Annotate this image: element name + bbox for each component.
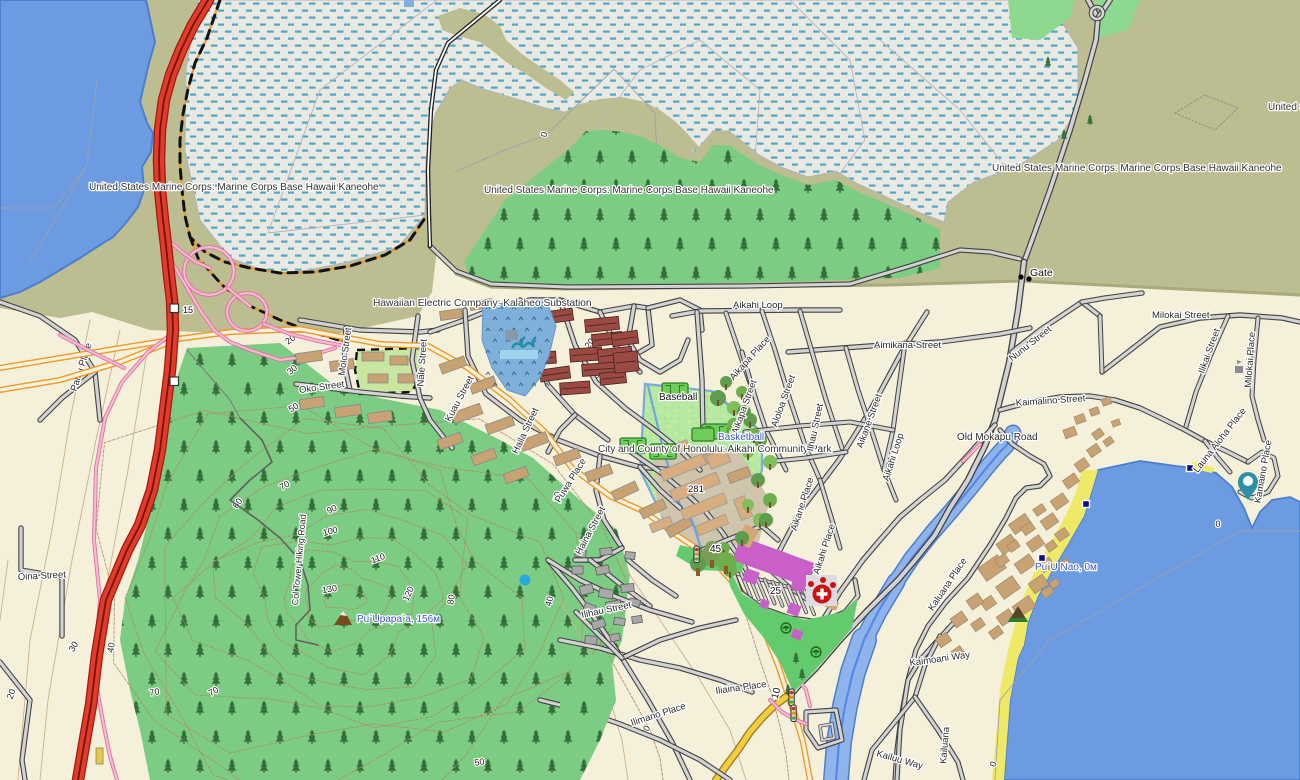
svg-text:70: 70	[149, 686, 161, 698]
svg-text:Baseball: Baseball	[659, 392, 697, 403]
svg-text:0: 0	[1215, 519, 1220, 529]
svg-text:40: 40	[105, 642, 117, 654]
svg-text:Aimikana Street: Aimikana Street	[874, 340, 941, 351]
svg-text:Gate: Gate	[1030, 267, 1053, 279]
svg-text:Old Mokapu Road: Old Mokapu Road	[957, 432, 1038, 443]
svg-text:United States Marine Corps: Ma: United States Marine Corps: Marine Corps…	[484, 185, 774, 196]
svg-text:City and County of Honolulu: A: City and County of Honolulu: Aikahi Comm…	[598, 444, 832, 455]
svg-text:281: 281	[688, 484, 704, 495]
svg-text:Pu`U Nao, 0м: Pu`U Nao, 0м	[1035, 561, 1097, 573]
svg-text:Hawaiian Electric Company: Kal: Hawaiian Electric Company: Kalaheo Subst…	[373, 298, 592, 309]
svg-text:United States Marine Corps: Ma: United States Marine Corps: Marine Corps…	[89, 182, 379, 193]
svg-text:50: 50	[474, 756, 486, 768]
svg-text:Aikahi Loop: Aikahi Loop	[733, 300, 783, 311]
svg-text:Basketball: Basketball	[718, 432, 764, 443]
svg-text:United S: United S	[1268, 102, 1300, 113]
svg-text:45: 45	[710, 544, 722, 555]
svg-text:Milokai Street: Milokai Street	[1152, 310, 1210, 321]
svg-text:United States Marine Corps: Ma: United States Marine Corps: Marine Corps…	[992, 163, 1282, 174]
svg-text:25: 25	[770, 586, 782, 597]
svg-text:Pu`Upapa`a, 156м: Pu`Upapa`a, 156м	[357, 613, 440, 625]
svg-text:80: 80	[445, 594, 457, 606]
svg-text:15: 15	[183, 305, 193, 315]
